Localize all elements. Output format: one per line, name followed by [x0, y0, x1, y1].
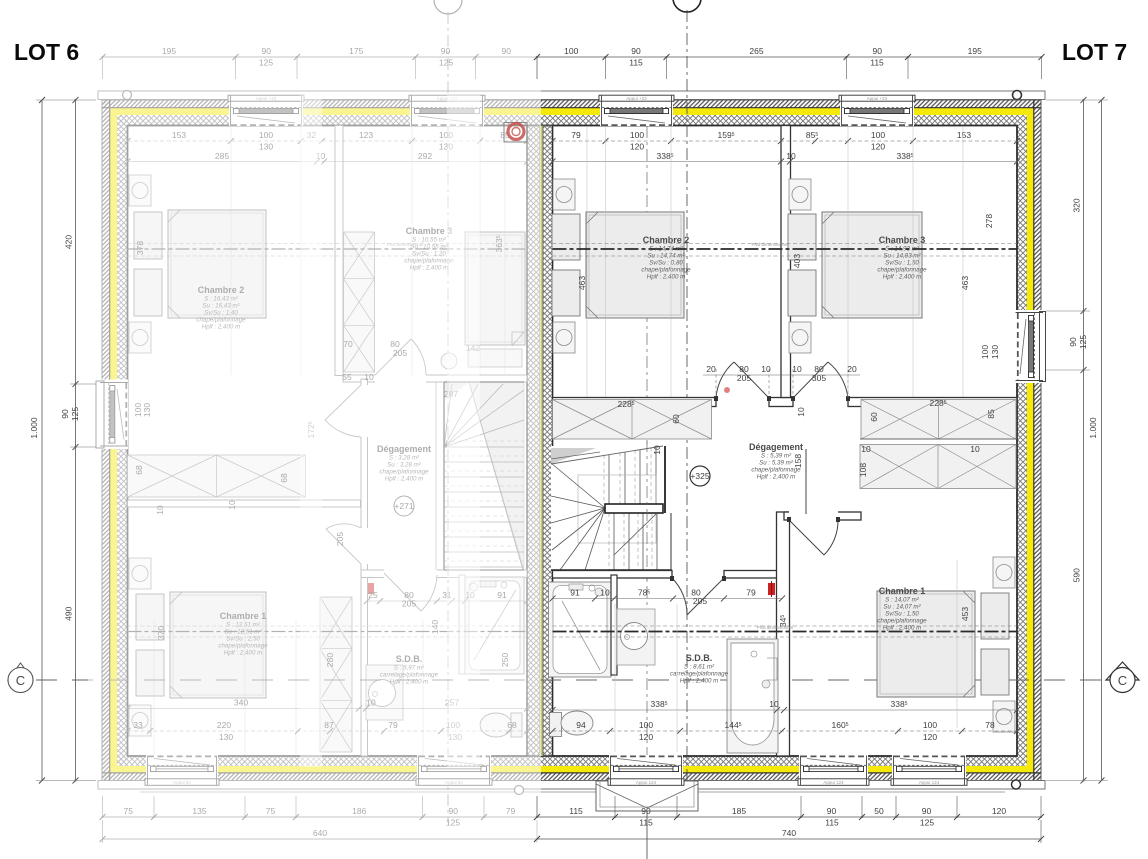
svg-text:278: 278: [984, 214, 994, 228]
svg-text:10: 10: [769, 699, 779, 709]
svg-text:120: 120: [923, 732, 937, 742]
svg-text:Appui +23: Appui +23: [867, 96, 888, 101]
svg-text:320: 320: [1072, 198, 1082, 212]
svg-text:453: 453: [960, 607, 970, 621]
svg-text:C: C: [16, 673, 25, 688]
svg-text:Appui 124: Appui 124: [919, 780, 940, 785]
svg-text:100: 100: [639, 720, 653, 730]
svg-text:125: 125: [1078, 335, 1088, 349]
svg-text:Dégagement: Dégagement: [749, 442, 803, 452]
svg-text:Appui 124: Appui 124: [823, 780, 844, 785]
svg-text:Hplf : 2,400 m: Hplf : 2,400 m: [883, 273, 922, 280]
svg-text:Hplf : 2,400 m: Hplf : 2,400 m: [883, 624, 922, 631]
svg-text:85: 85: [986, 409, 996, 419]
svg-text:79: 79: [571, 130, 581, 140]
svg-text:10: 10: [652, 445, 662, 455]
svg-text:10: 10: [861, 444, 871, 454]
svg-text:Hplf : 2,400 m: Hplf : 2,400 m: [680, 677, 719, 684]
svg-text:10: 10: [796, 407, 806, 417]
svg-text:100: 100: [923, 720, 937, 730]
svg-text:463: 463: [960, 276, 970, 290]
svg-text:50: 50: [874, 806, 884, 816]
svg-text:305: 305: [812, 373, 826, 383]
svg-text:Sv/Su : 1,50: Sv/Su : 1,50: [885, 610, 919, 617]
svg-text:10: 10: [786, 151, 796, 161]
svg-text:C: C: [1118, 673, 1127, 688]
svg-text:S : 8,61 m²: S : 8,61 m²: [684, 663, 715, 670]
svg-text:108: 108: [858, 463, 868, 477]
svg-text:120: 120: [630, 142, 644, 152]
svg-text:90: 90: [60, 409, 70, 419]
svg-text:590: 590: [1072, 568, 1082, 582]
svg-text:115: 115: [639, 818, 653, 828]
svg-text:S.D.B.: S.D.B.: [686, 653, 713, 663]
svg-text:10: 10: [970, 444, 980, 454]
svg-text:1.000: 1.000: [29, 417, 39, 439]
svg-text:120: 120: [871, 142, 885, 152]
svg-text:490: 490: [64, 606, 74, 620]
svg-text:115: 115: [569, 806, 583, 816]
svg-text:LOT 7: LOT 7: [1062, 39, 1127, 65]
svg-text:Su : 14,07 m²: Su : 14,07 m²: [883, 603, 921, 610]
svg-text:195: 195: [968, 46, 982, 56]
svg-text:20: 20: [706, 364, 716, 374]
svg-text:Plvd dimensionner: Plvd dimensionner: [751, 242, 789, 247]
svg-text:LOT 6: LOT 6: [14, 39, 79, 65]
svg-text:10: 10: [792, 364, 802, 374]
svg-text:Hplf : 2,400 m: Hplf : 2,400 m: [757, 473, 796, 480]
svg-text:20: 20: [847, 364, 857, 374]
svg-text:10: 10: [761, 364, 771, 374]
svg-text:463: 463: [577, 276, 587, 290]
svg-text:120: 120: [639, 732, 653, 742]
svg-text:205: 205: [737, 373, 751, 383]
svg-text:403: 403: [792, 254, 802, 268]
svg-text:10: 10: [600, 588, 610, 598]
svg-text:265: 265: [749, 46, 763, 56]
svg-text:90: 90: [1068, 337, 1078, 347]
svg-text:100: 100: [871, 130, 885, 140]
svg-text:90: 90: [922, 806, 932, 816]
svg-text:+325: +325: [690, 471, 709, 481]
svg-text:90: 90: [827, 806, 837, 816]
svg-text:94: 94: [576, 720, 586, 730]
svg-text:100: 100: [630, 130, 644, 140]
svg-text:Chambre 1: Chambre 1: [879, 586, 926, 596]
svg-text:153: 153: [957, 130, 971, 140]
svg-text:420: 420: [64, 235, 74, 249]
svg-text:740: 740: [782, 828, 796, 838]
svg-text:carrelage/plafonnage: carrelage/plafonnage: [670, 670, 729, 677]
svg-text:S : 14,07 m²: S : 14,07 m²: [885, 596, 920, 603]
svg-text:115: 115: [629, 58, 643, 68]
svg-text:185: 185: [732, 806, 746, 816]
svg-text:100: 100: [564, 46, 578, 56]
svg-text:60: 60: [671, 414, 681, 424]
svg-text:Appui +23: Appui +23: [626, 96, 647, 101]
svg-text:130: 130: [990, 345, 1000, 359]
svg-text:115: 115: [825, 818, 839, 828]
svg-text:Sv/Su : 0,80: Sv/Su : 0,80: [649, 259, 683, 266]
svg-text:78: 78: [985, 720, 995, 730]
svg-text:Su : 14,93 m²: Su : 14,93 m²: [883, 252, 921, 259]
svg-text:1.000: 1.000: [1088, 417, 1098, 439]
svg-text:chape/plafonnage: chape/plafonnage: [641, 266, 691, 273]
svg-text:Sv/Su : 1,50: Sv/Su : 1,50: [885, 259, 919, 266]
svg-text:Hplf : 2,400 m: Hplf : 2,400 m: [647, 273, 686, 280]
svg-text:115: 115: [870, 58, 884, 68]
svg-text:Appui 124: Appui 124: [636, 780, 657, 785]
svg-text:90: 90: [631, 46, 641, 56]
svg-text:90: 90: [873, 46, 883, 56]
svg-text:100: 100: [980, 345, 990, 359]
svg-text:205: 205: [693, 596, 707, 606]
svg-text:Su : 5,39 m²: Su : 5,39 m²: [759, 459, 794, 466]
svg-text:S : 5,39 m²: S : 5,39 m²: [761, 452, 792, 459]
svg-text:125: 125: [70, 407, 80, 421]
svg-text:120: 120: [992, 806, 1006, 816]
svg-text:chape/plafonnage: chape/plafonnage: [877, 617, 927, 624]
svg-text:79: 79: [746, 588, 756, 598]
svg-text:90: 90: [641, 806, 651, 816]
svg-text:60: 60: [869, 412, 879, 422]
svg-text:91: 91: [570, 588, 580, 598]
svg-text:158: 158: [793, 454, 803, 468]
svg-text:125: 125: [920, 818, 934, 828]
svg-text:chape/plafonnage: chape/plafonnage: [877, 266, 927, 273]
